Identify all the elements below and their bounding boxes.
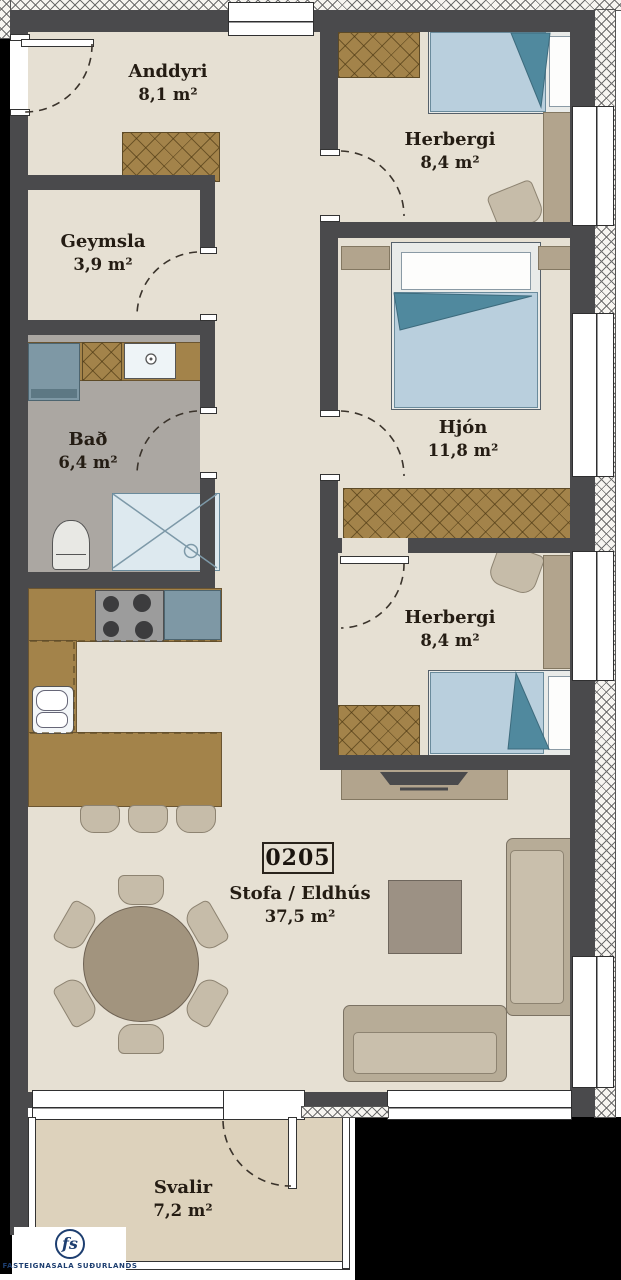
room-area: 8,1 m² <box>78 84 258 106</box>
wardrobe-hjon <box>343 488 587 539</box>
window-anddyri <box>228 2 314 36</box>
bar-stool-1 <box>80 805 120 833</box>
bed-blanket-herbergi-1 <box>430 32 546 112</box>
room-area: 8,4 m² <box>360 152 540 174</box>
label-herbergi-2: Herbergi 8,4 m² <box>360 606 540 652</box>
insulation-hatch-bottom <box>302 1107 388 1117</box>
geymsla-opening <box>200 250 215 316</box>
label-stofa-eldhus: Stofa / Eldhús 37,5 m² <box>200 882 400 928</box>
wall-mid-c <box>320 477 338 770</box>
herbergi2-door-leaf <box>340 556 409 564</box>
realtor-logo: fs FASTEIGNASALA SUÐURLANDS <box>14 1227 126 1274</box>
herbergi2-opening <box>342 538 408 553</box>
wall-geymsla-bath <box>10 320 215 335</box>
wall-mid-a <box>320 32 338 152</box>
herbergi1-jamb-bottom <box>320 215 340 222</box>
wall-hjon-herbergi2-b <box>408 538 595 553</box>
geymsla-jamb-top <box>200 247 217 254</box>
washing-machine <box>28 343 80 401</box>
geymsla-jamb-bottom <box>200 314 217 321</box>
refrigerator <box>164 590 221 640</box>
window-living-right <box>572 956 614 1088</box>
bed-blanket-hjon <box>394 292 538 408</box>
window-living-bottom-1 <box>32 1090 224 1120</box>
toilet-tank <box>56 554 86 567</box>
dining-chair-4 <box>118 1024 164 1054</box>
kitchen-sink <box>32 686 74 734</box>
bar-stool-2 <box>128 805 168 833</box>
floor-plan: Anddyri 8,1 m² Herbergi 8,4 m² Geymsla 3… <box>0 0 621 1280</box>
room-name: Geymsla <box>23 230 183 254</box>
window-herbergi-1 <box>572 106 614 226</box>
insulation-hatch-top <box>10 0 621 10</box>
bar-stool-3 <box>176 805 216 833</box>
dining-chair-1 <box>118 875 164 905</box>
room-area: 3,9 m² <box>23 254 183 276</box>
stove <box>95 590 164 642</box>
outside-bottom-right <box>355 1117 621 1280</box>
room-name: Anddyri <box>78 60 258 84</box>
herbergi1-jamb-top <box>320 149 340 156</box>
wall-herbergi2-living <box>338 755 595 770</box>
room-name: Svalir <box>93 1176 273 1200</box>
kitchen-island <box>28 732 222 807</box>
room-area: 8,4 m² <box>360 630 540 652</box>
room-name: Stofa / Eldhús <box>200 882 400 906</box>
bath-jamb-top <box>200 407 217 414</box>
room-name: Herbergi <box>360 128 540 152</box>
bath-opening <box>200 410 215 475</box>
entrance-opening <box>10 36 28 112</box>
washer-panel <box>31 389 77 398</box>
herbergi1-opening <box>320 152 338 218</box>
room-name: Hjón <box>373 416 553 440</box>
label-hjon: Hjón 11,8 m² <box>373 416 553 462</box>
toilet <box>52 520 90 570</box>
window-living-bottom-2 <box>387 1090 572 1120</box>
entrance-door-leaf <box>21 39 94 47</box>
room-name: Bað <box>18 428 158 452</box>
sink-basin-1 <box>36 690 68 711</box>
unit-number: 0205 <box>262 842 334 874</box>
label-bath: Bað 6,4 m² <box>18 428 158 474</box>
balcony-door-opening <box>220 1090 305 1120</box>
bed-pillow-hjon <box>401 252 531 290</box>
wall-bath-kitchen <box>10 572 215 588</box>
bed-blanket-herbergi-2 <box>430 672 544 754</box>
bath-cabinet <box>82 342 122 381</box>
sofa-right-seat <box>510 850 564 1004</box>
room-area: 37,5 m² <box>200 906 400 928</box>
label-geymsla: Geymsla 3,9 m² <box>23 230 183 276</box>
window-herbergi-2 <box>572 551 614 681</box>
entrance-jamb-bottom <box>10 109 30 116</box>
tv-bench <box>341 766 508 800</box>
balcony-wall-right <box>342 1117 350 1269</box>
wall-hall-left-a <box>200 175 215 250</box>
bath-jamb-bottom <box>200 472 217 479</box>
hjon-opening <box>320 413 338 477</box>
room-name: Herbergi <box>360 606 540 630</box>
label-svalir: Svalir 7,2 m² <box>93 1176 273 1222</box>
bath-sink <box>124 343 176 379</box>
dining-table <box>83 906 199 1022</box>
sink-basin-2 <box>36 712 68 728</box>
wardrobe-herbergi-1 <box>338 32 420 78</box>
sofa-bottom-seat <box>353 1032 497 1074</box>
wall-left <box>10 10 28 1235</box>
room-area: 6,4 m² <box>18 452 158 474</box>
wall-mid-b <box>320 218 338 413</box>
hjon-jamb-bottom <box>320 474 340 481</box>
wall-hall-left-b <box>200 316 215 410</box>
room-area: 7,2 m² <box>93 1200 273 1222</box>
wardrobe-herbergi-2 <box>338 705 420 757</box>
logo-monogram: fs <box>55 1229 85 1259</box>
logo-text: FASTEIGNASALA SUÐURLANDS <box>2 1262 137 1270</box>
nightstand-left <box>341 246 390 270</box>
hjon-jamb-top <box>320 410 340 417</box>
window-hjon <box>572 313 614 477</box>
wall-hall-left-c <box>200 475 215 588</box>
balcony-door-leaf <box>288 1117 297 1189</box>
label-herbergi-1: Herbergi 8,4 m² <box>360 128 540 174</box>
label-anddyri: Anddyri 8,1 m² <box>78 60 258 106</box>
wall-herbergi1-hjon <box>320 222 595 238</box>
room-area: 11,8 m² <box>373 440 553 462</box>
insulation-hatch-topleft <box>0 0 10 38</box>
floor-hallway <box>215 180 320 588</box>
wall-anddyri-geymsla <box>10 175 215 190</box>
